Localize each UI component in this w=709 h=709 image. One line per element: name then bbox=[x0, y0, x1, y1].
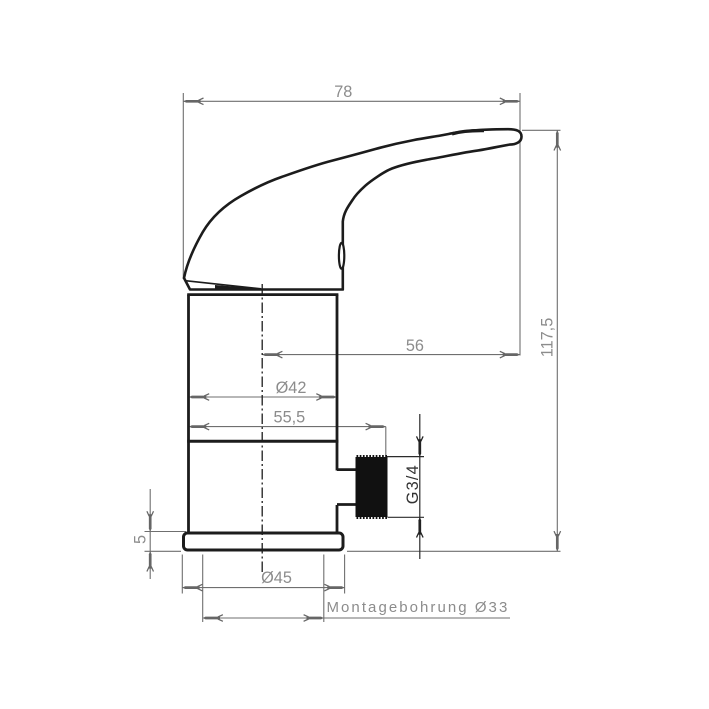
svg-text:78: 78 bbox=[334, 83, 352, 101]
svg-text:5: 5 bbox=[132, 535, 150, 544]
svg-text:56: 56 bbox=[406, 337, 424, 355]
svg-text:Ø42: Ø42 bbox=[276, 379, 307, 397]
svg-text:117,5: 117,5 bbox=[539, 318, 557, 358]
svg-text:Ø45: Ø45 bbox=[261, 569, 292, 587]
svg-text:G3/4: G3/4 bbox=[404, 464, 422, 504]
svg-text:Montagebohrung Ø33: Montagebohrung Ø33 bbox=[327, 599, 510, 616]
svg-text:55,5: 55,5 bbox=[274, 408, 306, 426]
